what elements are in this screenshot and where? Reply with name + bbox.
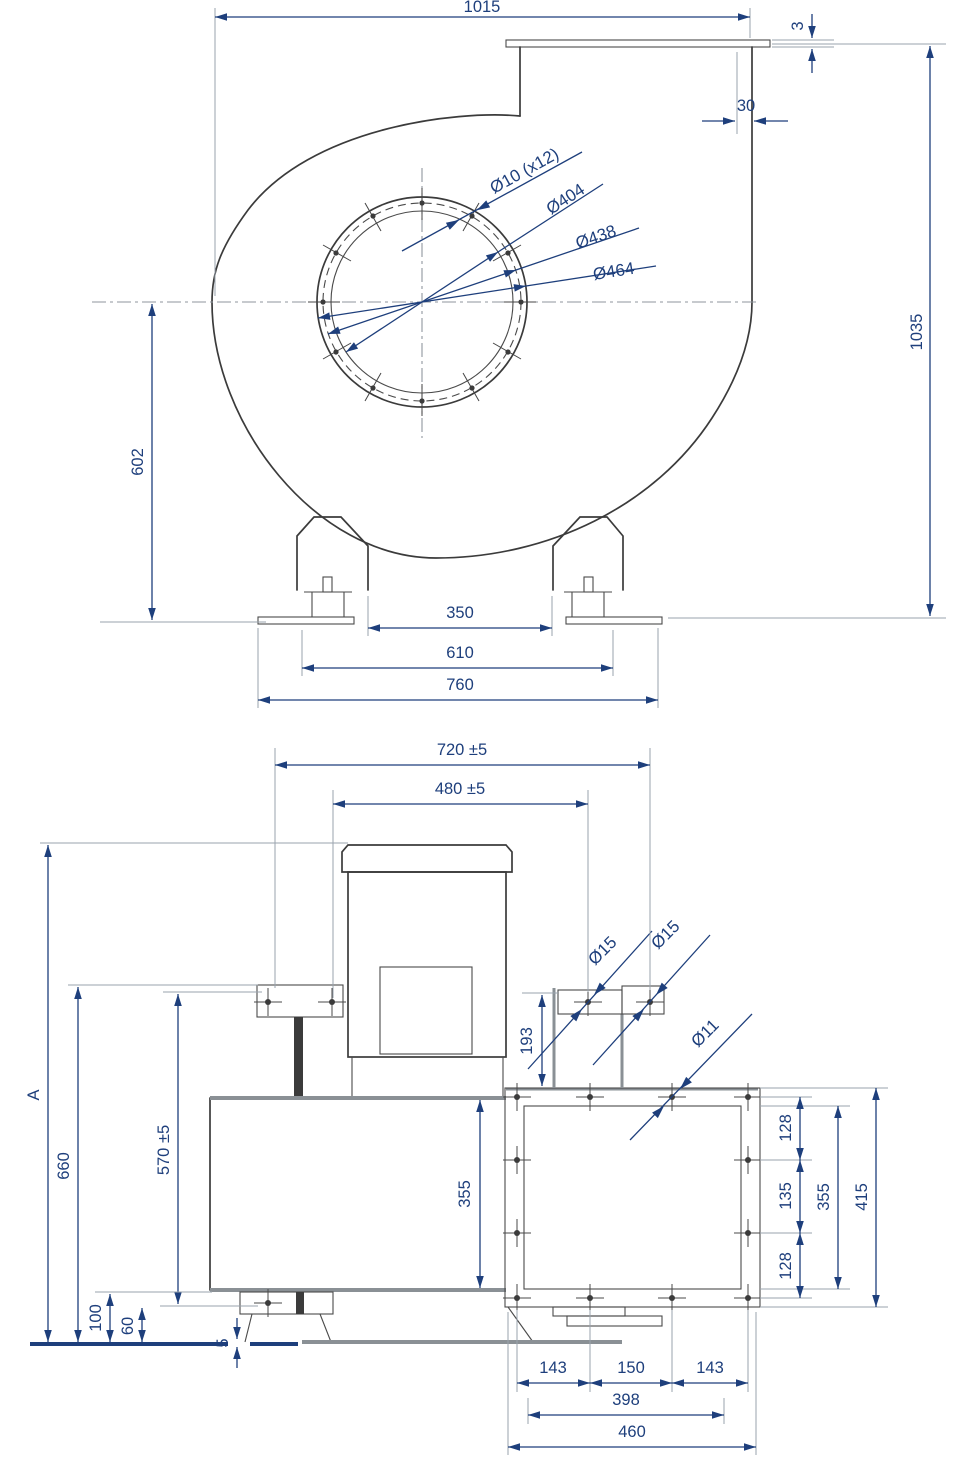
dim-dia464-label: Ø464 <box>592 259 636 284</box>
dim-5: 5 <box>214 1318 237 1368</box>
leader-dia11: Ø11 <box>630 1014 752 1140</box>
dim-30: 30 <box>702 52 788 134</box>
flange-bolt-hole <box>734 1219 762 1247</box>
dim-398-label: 398 <box>612 1391 640 1409</box>
dim-1035-label: 1035 <box>908 314 926 351</box>
dim-flange-bottom: 143 150 143 398 460 <box>508 1310 756 1455</box>
dim-dia15-left-label: Ø15 <box>584 933 620 969</box>
dim-128-top-label: 128 <box>777 1114 795 1142</box>
dim-480-label: 480 ±5 <box>435 780 485 798</box>
dim-135-label: 135 <box>777 1182 795 1210</box>
dim-660-label: 660 <box>55 1152 73 1180</box>
dim-flange-right: 128 135 128 355 415 <box>760 1088 888 1307</box>
front-view: Ø10 (x12) Ø404 Ø438 Ø464 1015 3 <box>92 0 946 708</box>
dim-1015-label: 1015 <box>464 0 501 16</box>
dim-143-right-label: 143 <box>696 1359 724 1377</box>
dim-60: 60 <box>119 1308 142 1342</box>
dim-dia404-label: Ø404 <box>543 180 588 219</box>
scroll-housing-outline <box>212 40 770 558</box>
motor-bracket <box>254 985 346 1097</box>
flange-bolt-hole <box>734 1146 762 1174</box>
flange-bolt-hole <box>503 1219 531 1247</box>
dim-602-label: 602 <box>129 448 147 476</box>
flange-bolt-hole <box>503 1083 531 1111</box>
terminal-box <box>380 967 472 1054</box>
dim-355-housing-label: 355 <box>456 1180 474 1208</box>
dim-193: 193 <box>518 993 558 1086</box>
inlet-box <box>554 986 664 1088</box>
dim-415-label: 415 <box>853 1183 871 1211</box>
inlet-centerlines <box>92 168 756 438</box>
dim-355-housing: 355 <box>456 1100 480 1288</box>
dim-143-left-label: 143 <box>539 1359 567 1377</box>
motor <box>342 845 512 1096</box>
dim-193-label: 193 <box>518 1027 536 1055</box>
dim-dia11-label: Ø11 <box>687 1016 722 1051</box>
leader-dia-438: Ø438 <box>328 221 639 334</box>
fan-technical-drawing: Ø10 (x12) Ø404 Ø438 Ø464 1015 3 <box>0 0 960 1462</box>
leader-dia15-left: Ø15 <box>528 931 652 1069</box>
dim-5-label: 5 <box>214 1338 232 1347</box>
dim-1035: 1035 <box>668 44 946 618</box>
leader-dia-464: Ø464 <box>318 259 656 318</box>
dim-720-label: 720 ±5 <box>437 741 487 759</box>
dim-100: 100 <box>87 1292 212 1342</box>
leader-dia-404: Ø404 <box>346 180 603 352</box>
dim-3-label: 3 <box>789 21 807 30</box>
dim-480: 480 ±5 <box>333 780 588 998</box>
dim-dia438-label: Ø438 <box>573 221 619 253</box>
dim-350: 350 <box>368 596 552 636</box>
dim-150-label: 150 <box>617 1359 645 1377</box>
dim-355-flange-label: 355 <box>815 1183 833 1211</box>
flange-bolt-hole <box>503 1146 531 1174</box>
side-view: Ø15 Ø15 Ø11 720 ±5 480 ±5 <box>25 741 888 1455</box>
dim-350-label: 350 <box>446 604 474 622</box>
foot-bolt-hole <box>254 1289 282 1317</box>
flange-bolt-hole <box>734 1083 762 1111</box>
dim-610-label: 610 <box>446 644 474 662</box>
outlet-flange <box>503 1083 762 1312</box>
dim-570: 570 ±5 <box>155 992 262 1306</box>
flange-bolt-hole <box>658 1284 686 1312</box>
flange-bolt-hole <box>576 1284 604 1312</box>
dim-30-label: 30 <box>737 97 755 115</box>
dim-dia15-right-label: Ø15 <box>647 917 683 953</box>
dim-760-label: 760 <box>446 676 474 694</box>
dim-bolt-holes-label: Ø10 (x12) <box>487 144 562 197</box>
dim-128-bottom-label: 128 <box>777 1252 795 1280</box>
bracket-bolt-hole <box>318 988 346 1016</box>
flange-bolt-hole <box>734 1284 762 1312</box>
dim-1015: 1015 <box>215 0 750 296</box>
drawing-svg: Ø10 (x12) Ø404 Ø438 Ø464 1015 3 <box>0 0 960 1462</box>
dim-570-label: 570 ±5 <box>155 1125 173 1175</box>
dim-460-label: 460 <box>618 1423 646 1441</box>
dim-A-label: A <box>25 1089 43 1100</box>
flange-bolt-hole <box>503 1284 531 1312</box>
dim-610: 610 <box>302 630 613 676</box>
dim-60-label: 60 <box>119 1317 137 1335</box>
flange-bolt-hole <box>576 1083 604 1111</box>
dim-100-label: 100 <box>87 1304 105 1332</box>
dim-602: 602 <box>100 304 266 622</box>
